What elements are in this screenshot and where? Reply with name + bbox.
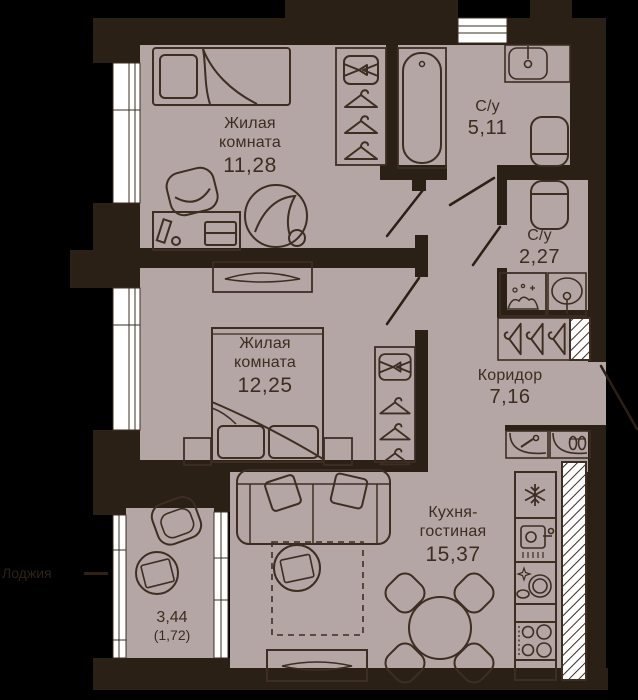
window-bathroom1 xyxy=(458,18,507,43)
dining-table xyxy=(409,597,471,659)
room-corridor-arm xyxy=(428,165,497,318)
floor-plan: Жилая комната 11,28 С/у 5,11 С/у 2,27 Жи… xyxy=(0,0,638,700)
floor-plan-drawing xyxy=(0,0,638,700)
loggia-leader-line xyxy=(84,572,108,575)
window-balcony-partition xyxy=(214,512,228,658)
duct-shaft xyxy=(562,462,586,680)
window-bedroom1 xyxy=(113,63,140,203)
window-bedroom2 xyxy=(113,288,140,430)
vent-shaft xyxy=(570,318,590,360)
room-bedroom1 xyxy=(140,45,390,248)
facade-recesses xyxy=(93,63,113,658)
window-balcony xyxy=(113,515,126,658)
